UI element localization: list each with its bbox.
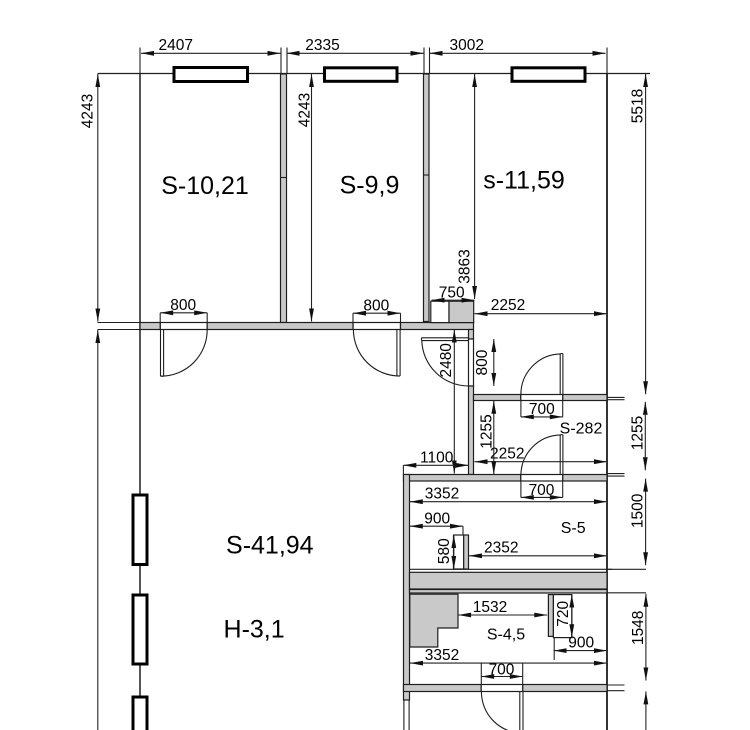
- svg-text:800: 800: [170, 297, 196, 314]
- svg-text:1548: 1548: [630, 611, 647, 645]
- svg-text:2252: 2252: [491, 297, 525, 314]
- svg-text:1255: 1255: [630, 416, 647, 450]
- svg-text:800: 800: [363, 297, 389, 314]
- svg-text:4243: 4243: [80, 94, 97, 128]
- svg-text:1100: 1100: [420, 450, 454, 467]
- svg-text:900: 900: [424, 511, 450, 528]
- svg-text:2335: 2335: [305, 37, 339, 54]
- svg-text:2352: 2352: [484, 540, 518, 557]
- svg-text:3002: 3002: [450, 37, 484, 54]
- svg-text:900: 900: [568, 635, 594, 652]
- svg-text:S-41,94: S-41,94: [226, 532, 314, 560]
- svg-text:S-4,5: S-4,5: [487, 627, 525, 644]
- svg-text:3352: 3352: [425, 647, 459, 664]
- svg-text:800: 800: [474, 349, 491, 375]
- svg-text:720: 720: [555, 600, 572, 626]
- svg-text:1532: 1532: [473, 599, 507, 616]
- svg-text:580: 580: [436, 538, 453, 564]
- svg-text:2480: 2480: [438, 343, 455, 378]
- svg-text:3352: 3352: [425, 486, 459, 503]
- svg-text:S-10,21: S-10,21: [161, 172, 249, 200]
- svg-text:750: 750: [439, 285, 465, 302]
- svg-text:5518: 5518: [630, 89, 647, 123]
- svg-text:1500: 1500: [630, 493, 647, 528]
- svg-text:s-11,59: s-11,59: [483, 166, 565, 194]
- svg-text:S-5: S-5: [561, 520, 586, 537]
- svg-text:3863: 3863: [457, 249, 474, 283]
- svg-text:2407: 2407: [159, 37, 193, 54]
- svg-text:700: 700: [529, 401, 555, 418]
- svg-text:S-282: S-282: [560, 420, 603, 437]
- svg-text:1255: 1255: [479, 414, 496, 448]
- svg-text:H-3,1: H-3,1: [224, 615, 285, 643]
- svg-text:700: 700: [489, 661, 515, 678]
- svg-text:700: 700: [529, 482, 555, 499]
- svg-text:4243: 4243: [297, 93, 314, 127]
- svg-text:S-9,9: S-9,9: [340, 172, 400, 200]
